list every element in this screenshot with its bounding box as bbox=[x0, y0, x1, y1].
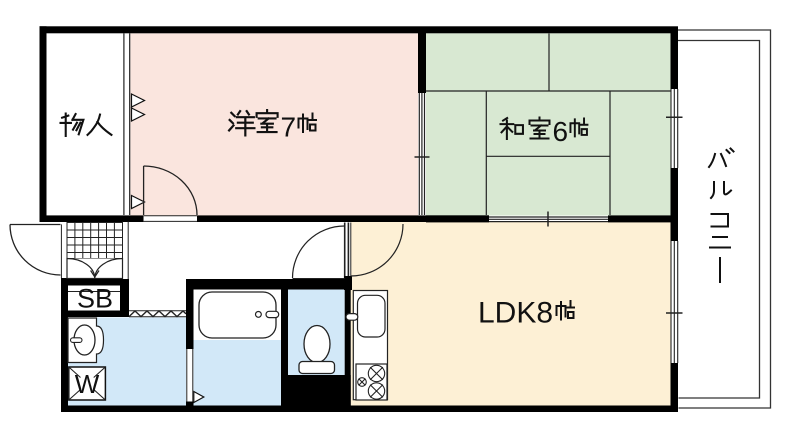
svg-text:LDK8: LDK8 bbox=[478, 297, 553, 330]
svg-text:W: W bbox=[75, 369, 100, 399]
svg-text:SB: SB bbox=[77, 284, 113, 314]
svg-text:6: 6 bbox=[553, 116, 569, 147]
svg-text:7: 7 bbox=[281, 112, 297, 143]
